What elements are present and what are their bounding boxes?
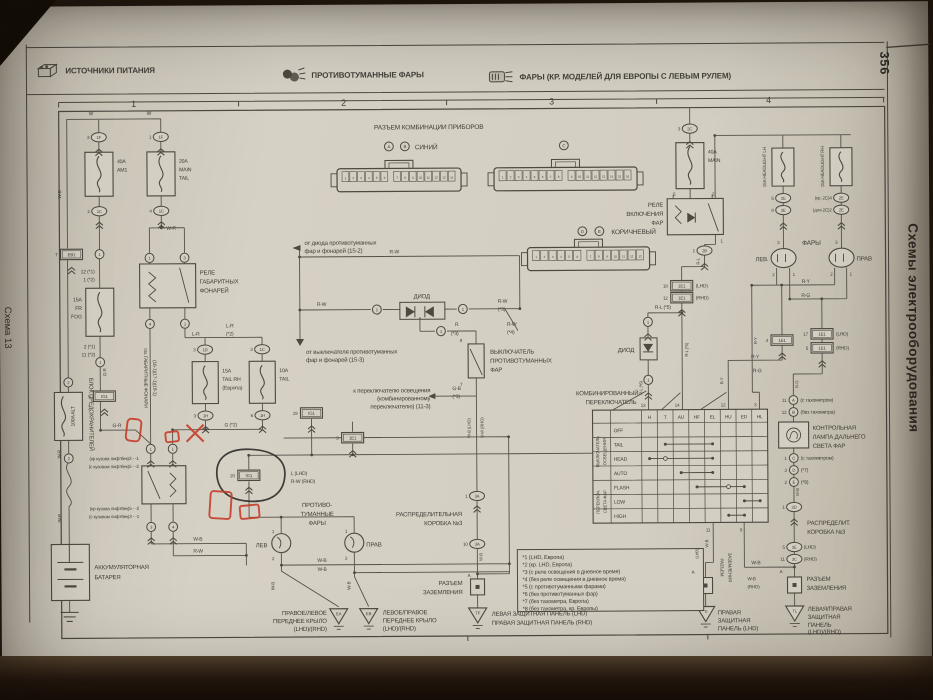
table-group-label: СВЕТА ФАР: [602, 490, 607, 513]
column-number: 3: [549, 96, 554, 106]
label: 14: [675, 403, 680, 408]
fuse-label: TAIL: [179, 176, 189, 182]
table-row-label: OFF: [614, 428, 624, 434]
label: W-B: [347, 581, 352, 589]
book-page: 40AAM120AMAINTAIL15AFRFOG15ATAIL RH(Евро…: [0, 1, 932, 667]
connector-arrow-icon: [101, 409, 108, 416]
variant-label: (с тахометром): [801, 456, 834, 462]
label: R-Y: [802, 279, 811, 285]
label: 13: [641, 403, 646, 408]
junction-dot: [820, 297, 823, 300]
fuse-label: 100A ALT: [70, 406, 76, 426]
label: G-R: [113, 423, 122, 429]
battery: [51, 544, 89, 600]
variant-label: (LHD): [836, 331, 849, 337]
label: L-R: [192, 332, 200, 338]
label: РАСПРЕДЕЛИТ.: [807, 521, 851, 527]
label: см. ГАБАРИТНЫЕ ФОНАРИ: [142, 348, 148, 408]
junction-dot: [245, 554, 248, 557]
label: (*3): [451, 331, 459, 337]
label: (LHD)/(RHD): [808, 630, 841, 636]
label: R-G: [753, 368, 762, 374]
table-row-label: FLASH: [614, 485, 630, 491]
junction-dot: [793, 566, 796, 569]
connector-code: 1D: [203, 347, 208, 352]
column-number: 2: [341, 98, 346, 108]
label: ДИОД: [414, 294, 430, 300]
variant-label: (RHD): [804, 557, 817, 563]
label: от выключателя противотуманных: [306, 349, 397, 356]
label: 9: [740, 527, 743, 532]
headlamp: [829, 248, 854, 267]
pin-number: 18: [663, 284, 668, 289]
ground-id: EB: [366, 611, 372, 616]
junction-dot: [780, 284, 783, 287]
connector-pin-number: 12: [630, 254, 634, 258]
label: (*3): [452, 394, 460, 400]
pin-number: 1: [693, 248, 696, 253]
label: W-B (LHD): [467, 418, 472, 438]
connector-pin-number: 16: [626, 174, 630, 178]
label: РАЗЪЕМ: [806, 577, 830, 583]
label: 1: [850, 272, 853, 277]
label: W-R: [166, 226, 176, 232]
table-group-label: ВЫКЛЮЧАТЕЛЬ: [595, 436, 600, 467]
label: W-B: [317, 567, 327, 573]
connector-pin-number: 12: [435, 176, 439, 180]
fuse-label: (Европа): [222, 385, 242, 391]
fuse-label: 15A HEADLIGHT LH: [762, 147, 767, 187]
footnote: *7 (без тахометра, Европа): [523, 599, 589, 605]
pin-number: 4: [149, 209, 152, 214]
connector-code: 1E1: [349, 435, 357, 440]
connector-letter-text: C: [562, 143, 565, 148]
legend-label: ФАРЫ (КР. МОДЕЛЕЙ ДЛЯ ЕВРОПЫ С ЛЕВЫМ РУЛ…: [519, 71, 731, 81]
label: от диода противотуманных: [304, 241, 376, 247]
label: 11: [706, 528, 711, 533]
label: W-B: [271, 582, 276, 590]
footnote: *4 (без реле освещения в дневное время): [522, 577, 626, 584]
label: (*2): [226, 331, 234, 337]
label: G-B: [452, 386, 461, 392]
connector-letter-text: A: [792, 398, 795, 403]
label: КОРОБКА №3: [807, 529, 846, 536]
fuse-label: MAIN: [708, 158, 721, 164]
label: A: [692, 570, 695, 575]
connector-code: 1E1: [678, 295, 686, 300]
pin-number: 7: [55, 252, 58, 257]
table-group-label: ОСВЕЩЕНИЯ: [602, 438, 607, 465]
label: W-B: [317, 558, 327, 564]
label: W-B: [478, 553, 483, 561]
table-row-label: AUTO: [614, 471, 627, 477]
footnote: *2 (кр. LHD, Европа): [522, 562, 572, 568]
connector-code: 2B: [702, 248, 707, 253]
fuse: [676, 143, 704, 189]
label: (RHD): [748, 584, 761, 589]
label: R-L (*5): [684, 342, 689, 356]
connector-code: 2E: [781, 208, 786, 213]
ground-id: TF: [475, 610, 480, 615]
label: 5: [673, 192, 676, 197]
label: L (LHD): [291, 471, 308, 477]
connector-code: 2E: [839, 207, 844, 212]
table-row-label: LOW: [614, 500, 625, 506]
table-col-header: EL: [710, 414, 716, 420]
table-col-header: HL: [757, 414, 763, 420]
label: КОРОБКА №3: [424, 520, 463, 527]
pin-number: 1: [782, 505, 785, 510]
label: (16-1)(17-1)(18-1): [151, 360, 157, 396]
label: ВКЛЮЧЕНИЯ: [626, 212, 663, 218]
pin-number: 11: [782, 398, 787, 403]
variant-label: (RHD): [836, 345, 849, 351]
label: A: [468, 573, 471, 578]
connector-letter-text: E: [598, 229, 601, 234]
label: W: [89, 111, 94, 117]
table-row-label: TAIL: [614, 442, 624, 448]
fuse: [249, 361, 275, 403]
label: ЛЕВАЯ/ПРАВАЯ: [808, 607, 852, 613]
pin-number: 5: [806, 346, 809, 351]
label: (LHD)/(RHD): [294, 627, 327, 633]
label: W-R: [57, 513, 62, 522]
pin-number: 5: [771, 196, 774, 201]
label: (LHD)/(RHD): [383, 626, 416, 632]
connector-code: 1C: [159, 209, 164, 214]
variant-label: (LHD): [696, 283, 709, 289]
label: ФОНАРЕЙ: [200, 286, 229, 294]
label: 8: [460, 338, 463, 343]
label: (с кузовом лифтбек)5 - -2: [89, 464, 140, 469]
column-number: 1: [131, 99, 136, 109]
connector-code: 1E1: [678, 283, 686, 288]
arrow-to-15-3: [296, 339, 304, 346]
junction-dot: [750, 284, 753, 287]
connector-letter-text: D: [581, 229, 584, 234]
variant-label: (LHD): [804, 545, 817, 551]
fuse-label: AM1: [117, 168, 128, 174]
fuse: [192, 362, 218, 404]
label: фар и фонарей (15-3): [306, 357, 364, 364]
label: W-R: [57, 449, 62, 458]
fuse-label: 40A: [117, 159, 127, 165]
connector-code: EB1: [68, 252, 77, 257]
connector-code: 2E: [781, 196, 786, 201]
variant-label: (*8): [801, 480, 809, 486]
label: R-L (*6): [638, 381, 643, 395]
connector-pin-number: 12: [594, 175, 598, 179]
connector-code: 3C: [792, 557, 797, 562]
label: W-B: [57, 190, 62, 198]
label: W: [147, 111, 152, 117]
label: A: [780, 569, 783, 574]
variant-label: (с тахометром): [800, 398, 833, 404]
legend-headlights: ФАРЫ (КР. МОДЕЛЕЙ ДЛЯ ЕВРОПЫ С ЛЕВЫМ РУЛ…: [487, 66, 731, 85]
junction-dot: [518, 307, 521, 310]
pin-number: 1: [784, 456, 787, 461]
pin-number: 3: [193, 347, 196, 352]
label: 2: [772, 272, 775, 277]
table-row-label: HEAD: [614, 457, 628, 463]
fuse-label: 40A: [708, 149, 718, 155]
pin-number: 12: [782, 410, 787, 415]
side-lights-relay: [140, 264, 196, 308]
label: ЛЕВ.: [756, 257, 770, 263]
page-curl-shadow: [0, 656, 933, 700]
label: G (*2): [225, 422, 238, 428]
label: РАЗЪЕМ: [719, 559, 724, 577]
label: R-W: [389, 249, 399, 255]
pin-number: 8: [771, 208, 774, 213]
label: БАТАРЕЯ: [94, 575, 120, 581]
label: ЗАЗЕМЛЕНИЯ: [423, 590, 463, 596]
label: ЛЕВОЕ/ПРАВОЕ: [383, 610, 428, 616]
label: R-W: [317, 302, 327, 308]
fuse-label: 10A: [279, 368, 289, 374]
label: R-L (*5): [655, 305, 672, 311]
table-col-header: HU: [725, 414, 732, 420]
label: ПРАВАЯ ЗАЩИТНАЯ ПАНЕЛЬ (RHD): [492, 620, 592, 627]
label: R-Y: [719, 377, 724, 384]
pin-number: 12: [663, 296, 668, 301]
label: W-B: [795, 488, 800, 496]
junction-dot: [680, 311, 683, 314]
connector-code: 2C: [687, 126, 692, 131]
connector-pin-number: 11: [622, 255, 625, 259]
junction-dot: [351, 453, 354, 456]
headlight-icon: [487, 68, 514, 86]
junction-dot: [99, 429, 102, 432]
table-col-header: T: [664, 415, 667, 421]
fuse-label: 20A: [179, 159, 189, 165]
label: ЗАЗЕМЛЕНИЯ: [727, 553, 732, 582]
connector-letter-text: A: [387, 144, 390, 149]
label: (LHD): [694, 548, 699, 559]
label: ЗАЩИТНАЯ: [808, 615, 841, 621]
fog-lamp-icon: [279, 66, 306, 84]
label: ПЕРЕДНЕЕ КРЫЛО: [273, 619, 327, 625]
label: 3: [777, 240, 780, 245]
label: ТУМАННЫЕ: [300, 512, 333, 518]
pin-number: 1: [465, 494, 468, 499]
fuse-label: 15A: [73, 297, 83, 303]
connector-pin-number: 15: [618, 175, 622, 179]
pin-number: 2: [785, 480, 788, 485]
label: W-B: [704, 539, 709, 547]
pin-number: 6: [251, 413, 254, 418]
page-number: 356: [877, 51, 891, 75]
label: ПАНЕЛЬ: [808, 623, 832, 629]
label: ПРАВ: [857, 257, 873, 263]
fuse-label: TAIL: [279, 377, 289, 383]
pin-number: 11: [780, 557, 785, 562]
pin-number: (для 2C)2: [813, 207, 833, 212]
label: R: [455, 322, 459, 328]
footnote: *5 (с противотуманными фарами): [523, 584, 606, 591]
fuse: [54, 392, 82, 440]
connector-arrow-icon: [68, 267, 75, 274]
connector-code: 1F: [96, 135, 101, 140]
connector-code: 1C: [97, 209, 102, 214]
connector-code: IG1: [101, 394, 108, 399]
label: ЛЕВАЯ ЗАЩИТНАЯ ПАНЕЛЬ (LHD): [492, 611, 588, 618]
connector-letter-text: B: [403, 144, 406, 149]
label: ДИОД: [618, 348, 634, 354]
pin-number: 17: [803, 332, 808, 337]
connector-code: 1E1: [818, 332, 826, 337]
connector-code: 1C: [260, 347, 265, 352]
footnote: *6 (без противотуманных фар): [523, 591, 598, 597]
junction-dot: [280, 564, 283, 567]
variant-label: (*7): [801, 468, 809, 474]
label: 3: [754, 402, 757, 407]
fuse-label: FR: [75, 306, 82, 312]
label: (*3): [498, 307, 506, 313]
label: R-Y: [751, 354, 760, 360]
connector-letter-text: B: [792, 410, 795, 415]
connector-code: 3D: [792, 505, 797, 510]
label: РЕЛЕ: [200, 271, 216, 277]
legend-label: ИСТОЧНИКИ ПИТАНИЯ: [65, 65, 155, 75]
label: РАЗЪЕМ: [438, 581, 462, 587]
headlamp: [771, 248, 796, 267]
label: (комбинированному: [377, 396, 430, 402]
connector-pin-number: 10: [419, 176, 423, 180]
pin-number: 19: [293, 411, 298, 416]
label: фар и фонарей (15-2): [304, 248, 362, 255]
label: 2: [712, 191, 715, 196]
fuse: [85, 152, 113, 196]
variant-label: (RHD): [696, 295, 709, 301]
label: 1: [345, 529, 348, 534]
connector-code: 1E1: [778, 338, 786, 343]
label: B-W (RHD): [480, 417, 485, 438]
connector-code: 1F: [158, 135, 163, 140]
junction-dot: [353, 571, 356, 574]
connector-pin-number: 11: [427, 176, 430, 180]
label: 3: [835, 240, 838, 245]
label: ФАРЫ: [802, 240, 821, 247]
label: РАЗЪЕМ КОМБИНАЦИИ ПРИБОРОВ: [374, 124, 484, 132]
label: ЗАЗЕМЛЕНИЯ: [807, 586, 847, 592]
connector-code: 1H: [260, 413, 265, 418]
red-pen-cross: [187, 425, 204, 442]
label: L-R: [226, 323, 234, 329]
connector-letter-text: C: [792, 456, 795, 461]
table-col-header: ED: [741, 414, 748, 420]
label: ФАР: [651, 221, 663, 227]
label: ФАР: [490, 368, 502, 374]
pin-number: (кр. 2C)4: [815, 195, 833, 200]
pin-number: 1: [149, 135, 152, 140]
pin-number: 5: [782, 545, 785, 550]
connector-pin-number: 14: [450, 176, 454, 180]
fuse-label: 15A HEADLIGHT RH: [820, 146, 825, 187]
label: 1: [793, 272, 796, 277]
connector-pin-number: 13: [442, 176, 446, 180]
connector-code: IG1: [246, 473, 253, 478]
table-col-header: HF: [694, 415, 700, 421]
connector-code: 2E: [839, 195, 844, 200]
label: ПРОТИВОТУМАННЫХ: [490, 358, 552, 364]
arrow-to-15-2: [292, 245, 300, 251]
red-pen-box: [165, 431, 179, 442]
ground-id: TI: [704, 609, 707, 614]
junction-dot: [280, 516, 283, 519]
junction-dot: [476, 573, 479, 576]
high-beam-indicator-lamp: [779, 422, 809, 448]
pin-number: 20: [230, 473, 235, 478]
label: 1 (*2): [83, 277, 95, 283]
legend-power-sources: ИСТОЧНИКИ ПИТАНИЯ: [34, 60, 155, 81]
connector-letter-text: D: [792, 468, 795, 473]
label: ПЕРЕКЛЮЧАТЕЛЬ: [586, 400, 637, 406]
junction-dot: [507, 435, 510, 438]
connector-pin-number: 13: [638, 254, 642, 258]
fuse-label: 15A: [222, 368, 232, 374]
label: 11 (*2): [82, 352, 96, 358]
fuse: [772, 148, 794, 186]
connector-pin-number: 13: [602, 175, 606, 179]
table-col-header: AU: [678, 415, 685, 421]
label: ЗАЩИТНАЯ: [718, 618, 751, 624]
label: (кр кузова лифтбек)5 - -2: [90, 506, 140, 511]
pin-number: 10: [463, 542, 468, 547]
scheme-number: Схема 13: [2, 307, 13, 349]
legend-label: ПРОТИВОТУМАННЫЕ ФАРЫ: [311, 70, 424, 80]
pin-number: 3: [678, 126, 681, 131]
label: W-B: [747, 576, 755, 581]
footnote: *1 (LHD, Европа): [522, 555, 564, 561]
label: R-G: [794, 380, 799, 388]
footnote: *3 (с реле освещения в дневное время): [522, 569, 620, 576]
label: 2 (*1): [84, 344, 96, 350]
label: R-W: [193, 549, 203, 555]
junction-dot: [160, 226, 163, 229]
battery-ground-icon: [61, 612, 79, 621]
label: W-B: [751, 560, 761, 566]
label: G-R: [102, 367, 107, 376]
label: ЛЕВ: [256, 543, 268, 549]
label: ПЕРЕДНЕЕ КРЫЛО: [383, 618, 437, 624]
ground-id: EA: [336, 611, 342, 616]
pin-number: 3: [87, 135, 90, 140]
label: ФАРЫ: [309, 521, 326, 527]
pin-number: 4: [766, 338, 769, 343]
junction-dot: [298, 309, 301, 312]
label: ПРАВОЕ/ЛЕВОЕ: [282, 611, 327, 617]
pin-number: 3: [194, 413, 197, 418]
label: 1: [720, 238, 723, 243]
connector-code: IG1: [308, 411, 315, 416]
connector-code: 3E: [792, 545, 797, 550]
connector-code: 1H: [203, 413, 208, 418]
pin-number: 3: [784, 468, 787, 473]
fuse: [147, 152, 175, 196]
fuse: [86, 288, 114, 336]
label: 12 (*1): [81, 269, 95, 275]
column-number: 4: [766, 95, 771, 105]
connector-code: 3A: [475, 494, 480, 499]
label: КОНТРОЛЬНАЯ: [813, 426, 857, 432]
label: R-W: [498, 299, 508, 305]
connector-letter-text: E: [793, 480, 796, 485]
label: (*4): [507, 330, 515, 336]
label: ПРОТИВО-: [302, 503, 332, 509]
connector-pin-number: 14: [610, 175, 614, 179]
table-group-label: ПЕРЕКЛЮЧ.: [595, 490, 600, 514]
